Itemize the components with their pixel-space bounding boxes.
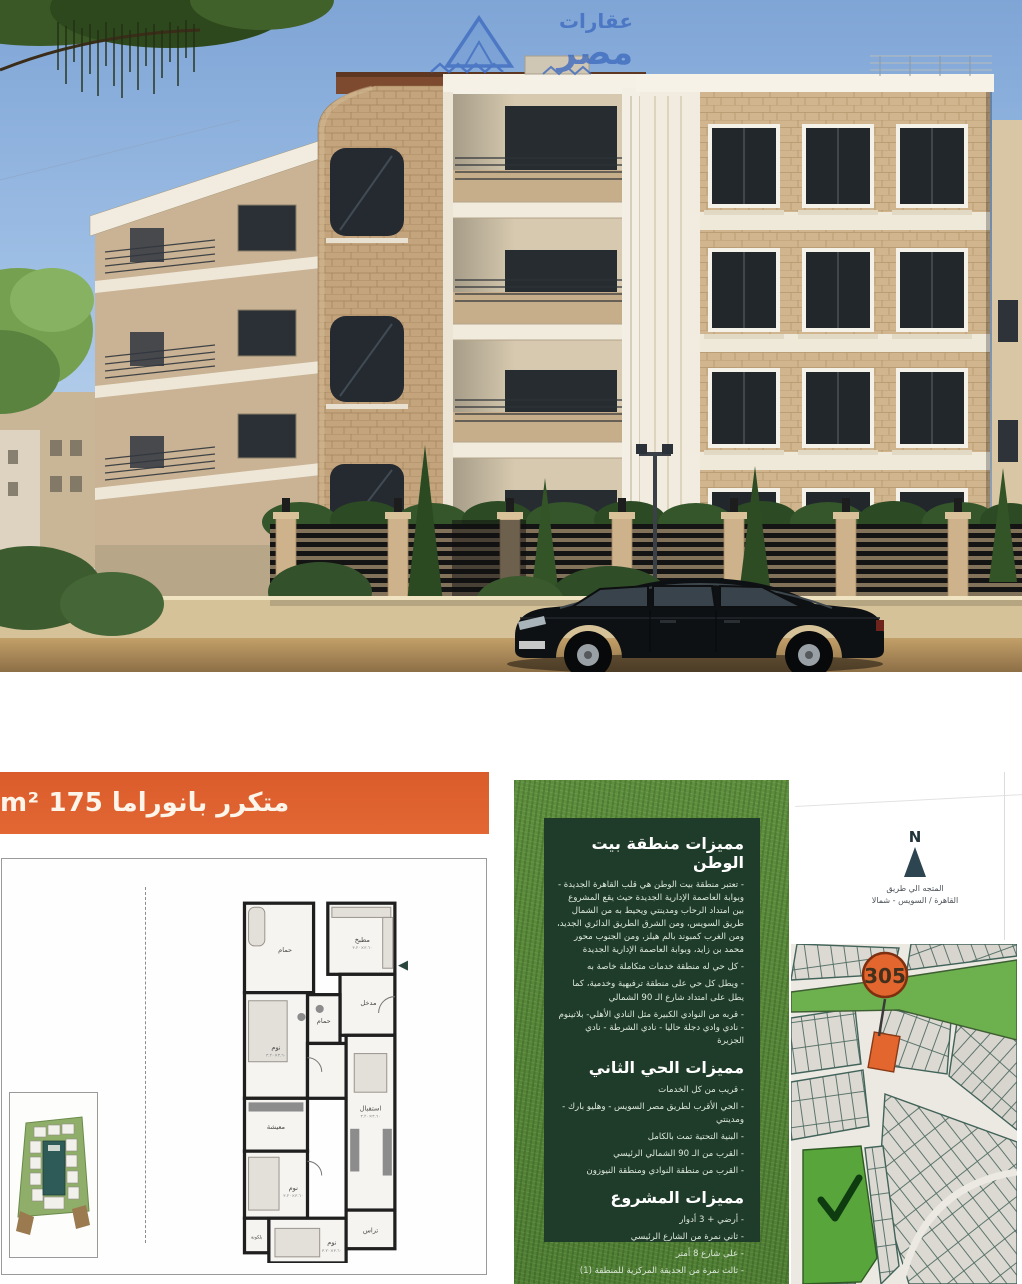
left-wing <box>90 136 334 560</box>
room-label-bath2: حمام <box>317 1017 331 1025</box>
feature-item: تعتبر منطقة بيت الوطن هي قلب القاهرة الج… <box>556 879 744 957</box>
feature-item: القرب من الـ 90 الشمالي الرئيسي <box>556 1148 744 1161</box>
feature-item: ويطل كل حي على منطقة ترفيهية وخدمية، كما… <box>556 978 744 1004</box>
svg-text:٣.٦٠×٣.٢٠: ٣.٦٠×٣.٢٠ <box>266 1053 286 1059</box>
section-title: مميزات المشروع <box>556 1188 744 1207</box>
section-title: مميزات الحي الثاني <box>556 1058 744 1077</box>
site-plan-box <box>9 1092 98 1258</box>
feature-item: قربه من النوادي الكبيرة مثل النادي الأهل… <box>556 1009 744 1048</box>
brochure-page: عقارات مصر متكرر بانوراما 175 m² ◀ <box>0 0 1022 1284</box>
page-fold-line <box>795 794 1022 807</box>
feature-item: البنية التحتية تمت بالكامل <box>556 1131 744 1144</box>
feature-item: قريب من كل الخدمات <box>556 1084 744 1097</box>
room-label-entrance: مدخل <box>360 999 376 1007</box>
room-label-bath: حمام <box>278 946 292 954</box>
features-section-district: مميزات الحي الثاني قريب من كل الخدمات ال… <box>556 1058 744 1178</box>
room-label-bedroom3: نوم <box>327 1239 336 1247</box>
compass-needle-icon <box>904 847 926 877</box>
watermark-logo: عقارات مصر <box>425 2 640 92</box>
features-panel-inner: مميزات منطقة بيت الوطن تعتبر منطقة بيت ا… <box>544 818 760 1242</box>
room-label-bedroom1: نوم <box>271 1044 280 1052</box>
feature-item: كل حي له منطقة خدمات متكاملة خاصة به <box>556 961 744 974</box>
watermark-word-top: عقارات <box>559 9 633 33</box>
compass-north-letter: N <box>840 830 990 845</box>
room-label-terrace: تراس <box>363 1226 379 1234</box>
building-render <box>0 0 1022 672</box>
feature-item: القرب من منطقة النوادي ومنطقة النيوزون <box>556 1165 744 1178</box>
room-label-reception: استقبال <box>360 1105 382 1113</box>
central-balconies <box>443 56 660 560</box>
master-plan-map: 305 <box>791 944 1017 1284</box>
feature-item: على شارع 8 أمتر <box>556 1248 744 1261</box>
features-panel: مميزات منطقة بيت الوطن تعتبر منطقة بيت ا… <box>514 780 789 1284</box>
feature-item: ثاني نمرة من الشارع الرئيسي <box>556 1231 744 1244</box>
room-label-kitchen: مطبخ <box>355 936 370 944</box>
room-label-bedroom2: نوم <box>289 1184 298 1192</box>
right-block <box>636 56 1022 562</box>
features-section-project: مميزات المشروع أرضي + 3 أدوار ثاني نمرة … <box>556 1188 744 1278</box>
plot-number: 305 <box>864 964 906 988</box>
svg-text:٣.٦٠×٣.٢٠: ٣.٦٠×٣.٢٠ <box>352 945 372 951</box>
floor-plan-drawing: حمام مطبخ مدخل حمام نوم معيشة نوم نوم اس… <box>214 895 402 1263</box>
unit-banner-label: متكرر بانوراما 175 m² <box>0 788 329 818</box>
svg-text:٣.٦٠×٣.٢٠: ٣.٦٠×٣.٢٠ <box>361 1114 381 1120</box>
svg-text:٣.٦٠×٣.٢٠: ٣.٦٠×٣.٢٠ <box>283 1193 303 1199</box>
building-photo: عقارات مصر <box>0 0 1022 672</box>
compass-caption-line2: القاهرة / السويس - شمالا <box>840 895 990 907</box>
distant-buildings <box>0 392 96 568</box>
plan-fold-dashed-line <box>145 887 146 1243</box>
compass: N المتجه الي طريق القاهرة / السويس - شما… <box>840 830 990 907</box>
map-highlighted-plot <box>868 1032 900 1072</box>
svg-text:٣.٦٠×٣.٢٠: ٣.٦٠×٣.٢٠ <box>322 1248 342 1254</box>
room-label-balcony: بلكونة <box>251 1235 262 1241</box>
features-section-area: مميزات منطقة بيت الوطن تعتبر منطقة بيت ا… <box>556 834 744 1048</box>
feature-item: الحي الأقرب لطريق مصر السويس - وهليو بار… <box>556 1101 744 1127</box>
unit-banner: متكرر بانوراما 175 m² <box>0 772 489 834</box>
section-title: مميزات منطقة بيت الوطن <box>556 834 744 872</box>
feature-item: أرضي + 3 أدوار <box>556 1214 744 1227</box>
compass-caption-line1: المتجه الي طريق <box>840 883 990 895</box>
page-edge-line <box>1004 772 1005 940</box>
room-label-living: معيشة <box>267 1123 285 1131</box>
site-plan-drawing <box>10 1093 97 1257</box>
feature-item: ثالث نمرة من الحديقة المركزية للمنطقة (1… <box>556 1265 744 1278</box>
